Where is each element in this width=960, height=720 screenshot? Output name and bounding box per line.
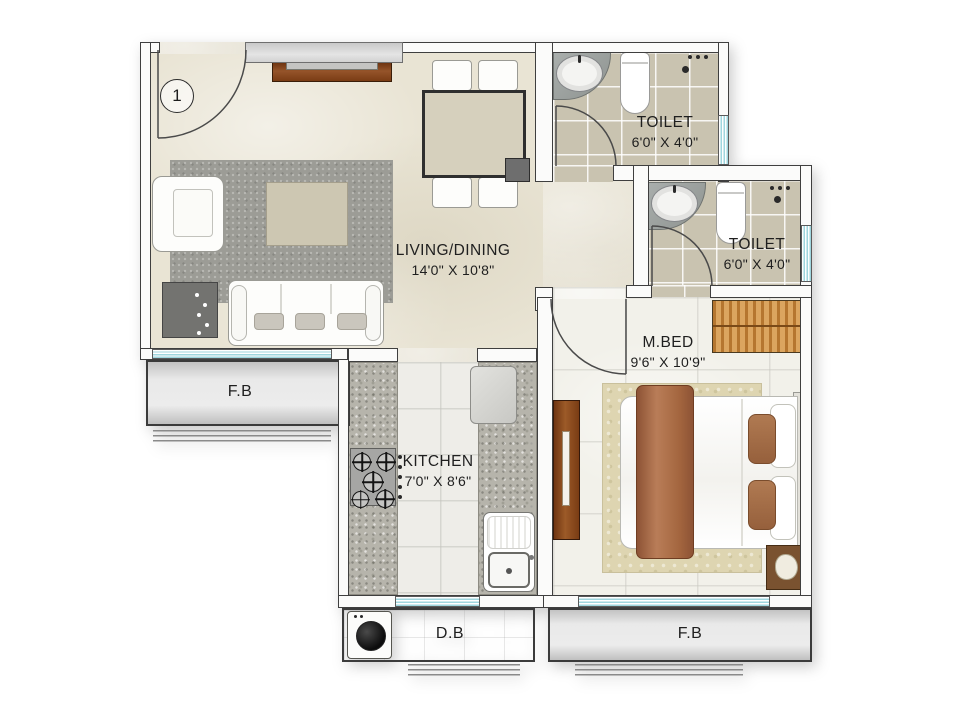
sink-drain bbox=[506, 568, 512, 574]
washing-machine-drum bbox=[356, 621, 386, 651]
floor-plan-canvas: 1 LIVING/DINING 14'0" X 10'8" TOILET 6'0… bbox=[0, 0, 960, 720]
sink-tap bbox=[529, 555, 534, 560]
toilet-wc bbox=[620, 52, 650, 114]
room-name: TOILET bbox=[632, 114, 699, 132]
sofa-pillow bbox=[295, 313, 325, 330]
master-bedroom-label: M.BED 9'6" X 10'9" bbox=[631, 334, 706, 370]
area-label: D.B bbox=[436, 625, 464, 642]
washbasin bbox=[556, 55, 603, 92]
louver-lines bbox=[575, 664, 743, 679]
dining-chair bbox=[432, 60, 472, 91]
unit-number: 1 bbox=[172, 86, 181, 106]
living-window bbox=[152, 349, 332, 359]
bedroom-threshold bbox=[553, 287, 628, 299]
dining-chair bbox=[478, 60, 518, 91]
armchair bbox=[152, 176, 224, 252]
sofa-armrest-left bbox=[231, 285, 247, 341]
sofa bbox=[228, 280, 384, 346]
louver-lines bbox=[153, 430, 331, 445]
toilet-wc bbox=[716, 182, 746, 244]
wall bbox=[626, 285, 652, 298]
toilet-mid-threshold bbox=[650, 285, 710, 297]
structural-column bbox=[505, 158, 530, 182]
wall bbox=[633, 165, 649, 297]
room-name: TOILET bbox=[724, 236, 791, 254]
refrigerator bbox=[470, 366, 517, 424]
room-dims: 6'0" X 4'0" bbox=[724, 256, 791, 272]
wall bbox=[535, 42, 553, 182]
wardrobe bbox=[712, 300, 803, 353]
area-label: F.B bbox=[228, 383, 253, 400]
living-dining-label: LIVING/DINING 14'0" X 10'8" bbox=[396, 242, 511, 278]
entry-threshold bbox=[158, 42, 246, 54]
room-dims: 7'0" X 8'6" bbox=[403, 473, 474, 489]
room-dims: 6'0" X 4'0" bbox=[632, 134, 699, 150]
bedroom-window bbox=[578, 596, 770, 607]
room-dims: 14'0" X 10'8" bbox=[396, 262, 511, 278]
kitchen-label: KITCHEN 7'0" X 8'6" bbox=[403, 453, 474, 489]
toilet-mid-vent bbox=[801, 225, 812, 282]
storage-unit bbox=[553, 400, 580, 540]
wall bbox=[338, 348, 349, 608]
apartment-unit-plan: 1 LIVING/DINING 14'0" X 10'8" TOILET 6'0… bbox=[0, 0, 960, 720]
room-name: LIVING/DINING bbox=[396, 242, 511, 260]
kitchen-window bbox=[395, 596, 480, 607]
washbasin bbox=[651, 185, 698, 222]
toilet-top-vent bbox=[718, 115, 729, 165]
coffee-table bbox=[266, 182, 348, 246]
unit-number-badge: 1 bbox=[160, 79, 194, 113]
washing-machine bbox=[347, 611, 392, 659]
dry-balcony-label: D.B bbox=[436, 625, 464, 643]
wall bbox=[140, 42, 151, 360]
room-dims: 9'6" X 10'9" bbox=[631, 354, 706, 370]
sofa-pillow bbox=[337, 313, 367, 330]
wall bbox=[537, 297, 553, 608]
shower-drain bbox=[774, 196, 781, 203]
pillow-brown bbox=[748, 480, 776, 530]
top-window-ledge bbox=[245, 42, 403, 63]
wall bbox=[800, 297, 812, 608]
toilet-mid-label: TOILET 6'0" X 4'0" bbox=[724, 236, 791, 272]
kitchen-threshold bbox=[398, 348, 477, 362]
passage-floor bbox=[543, 180, 633, 287]
sofa-pillow bbox=[254, 313, 284, 330]
table-lamp bbox=[775, 554, 798, 580]
sink-drainboard bbox=[487, 516, 531, 549]
side-table bbox=[162, 282, 218, 338]
kitchen-sink-unit bbox=[483, 512, 535, 592]
storage-unit-handle bbox=[562, 431, 570, 506]
room-name: M.BED bbox=[631, 334, 706, 352]
wall bbox=[710, 285, 812, 298]
area-label: F.B bbox=[678, 625, 703, 642]
armchair-cushion bbox=[173, 189, 213, 237]
pillow-brown bbox=[748, 414, 776, 464]
flower-bed-left-label: F.B bbox=[228, 383, 253, 401]
room-name: KITCHEN bbox=[403, 453, 474, 471]
louver-lines bbox=[408, 664, 520, 679]
dining-chair bbox=[432, 177, 472, 208]
flower-bed-right-label: F.B bbox=[678, 625, 703, 643]
toilet-top-threshold bbox=[553, 165, 613, 182]
tv-screen bbox=[286, 62, 378, 70]
shower-drain bbox=[682, 66, 689, 73]
toilet-top-label: TOILET 6'0" X 4'0" bbox=[632, 114, 699, 150]
wall bbox=[477, 348, 537, 362]
bed-runner bbox=[636, 385, 694, 559]
sofa-armrest-right bbox=[365, 285, 381, 341]
